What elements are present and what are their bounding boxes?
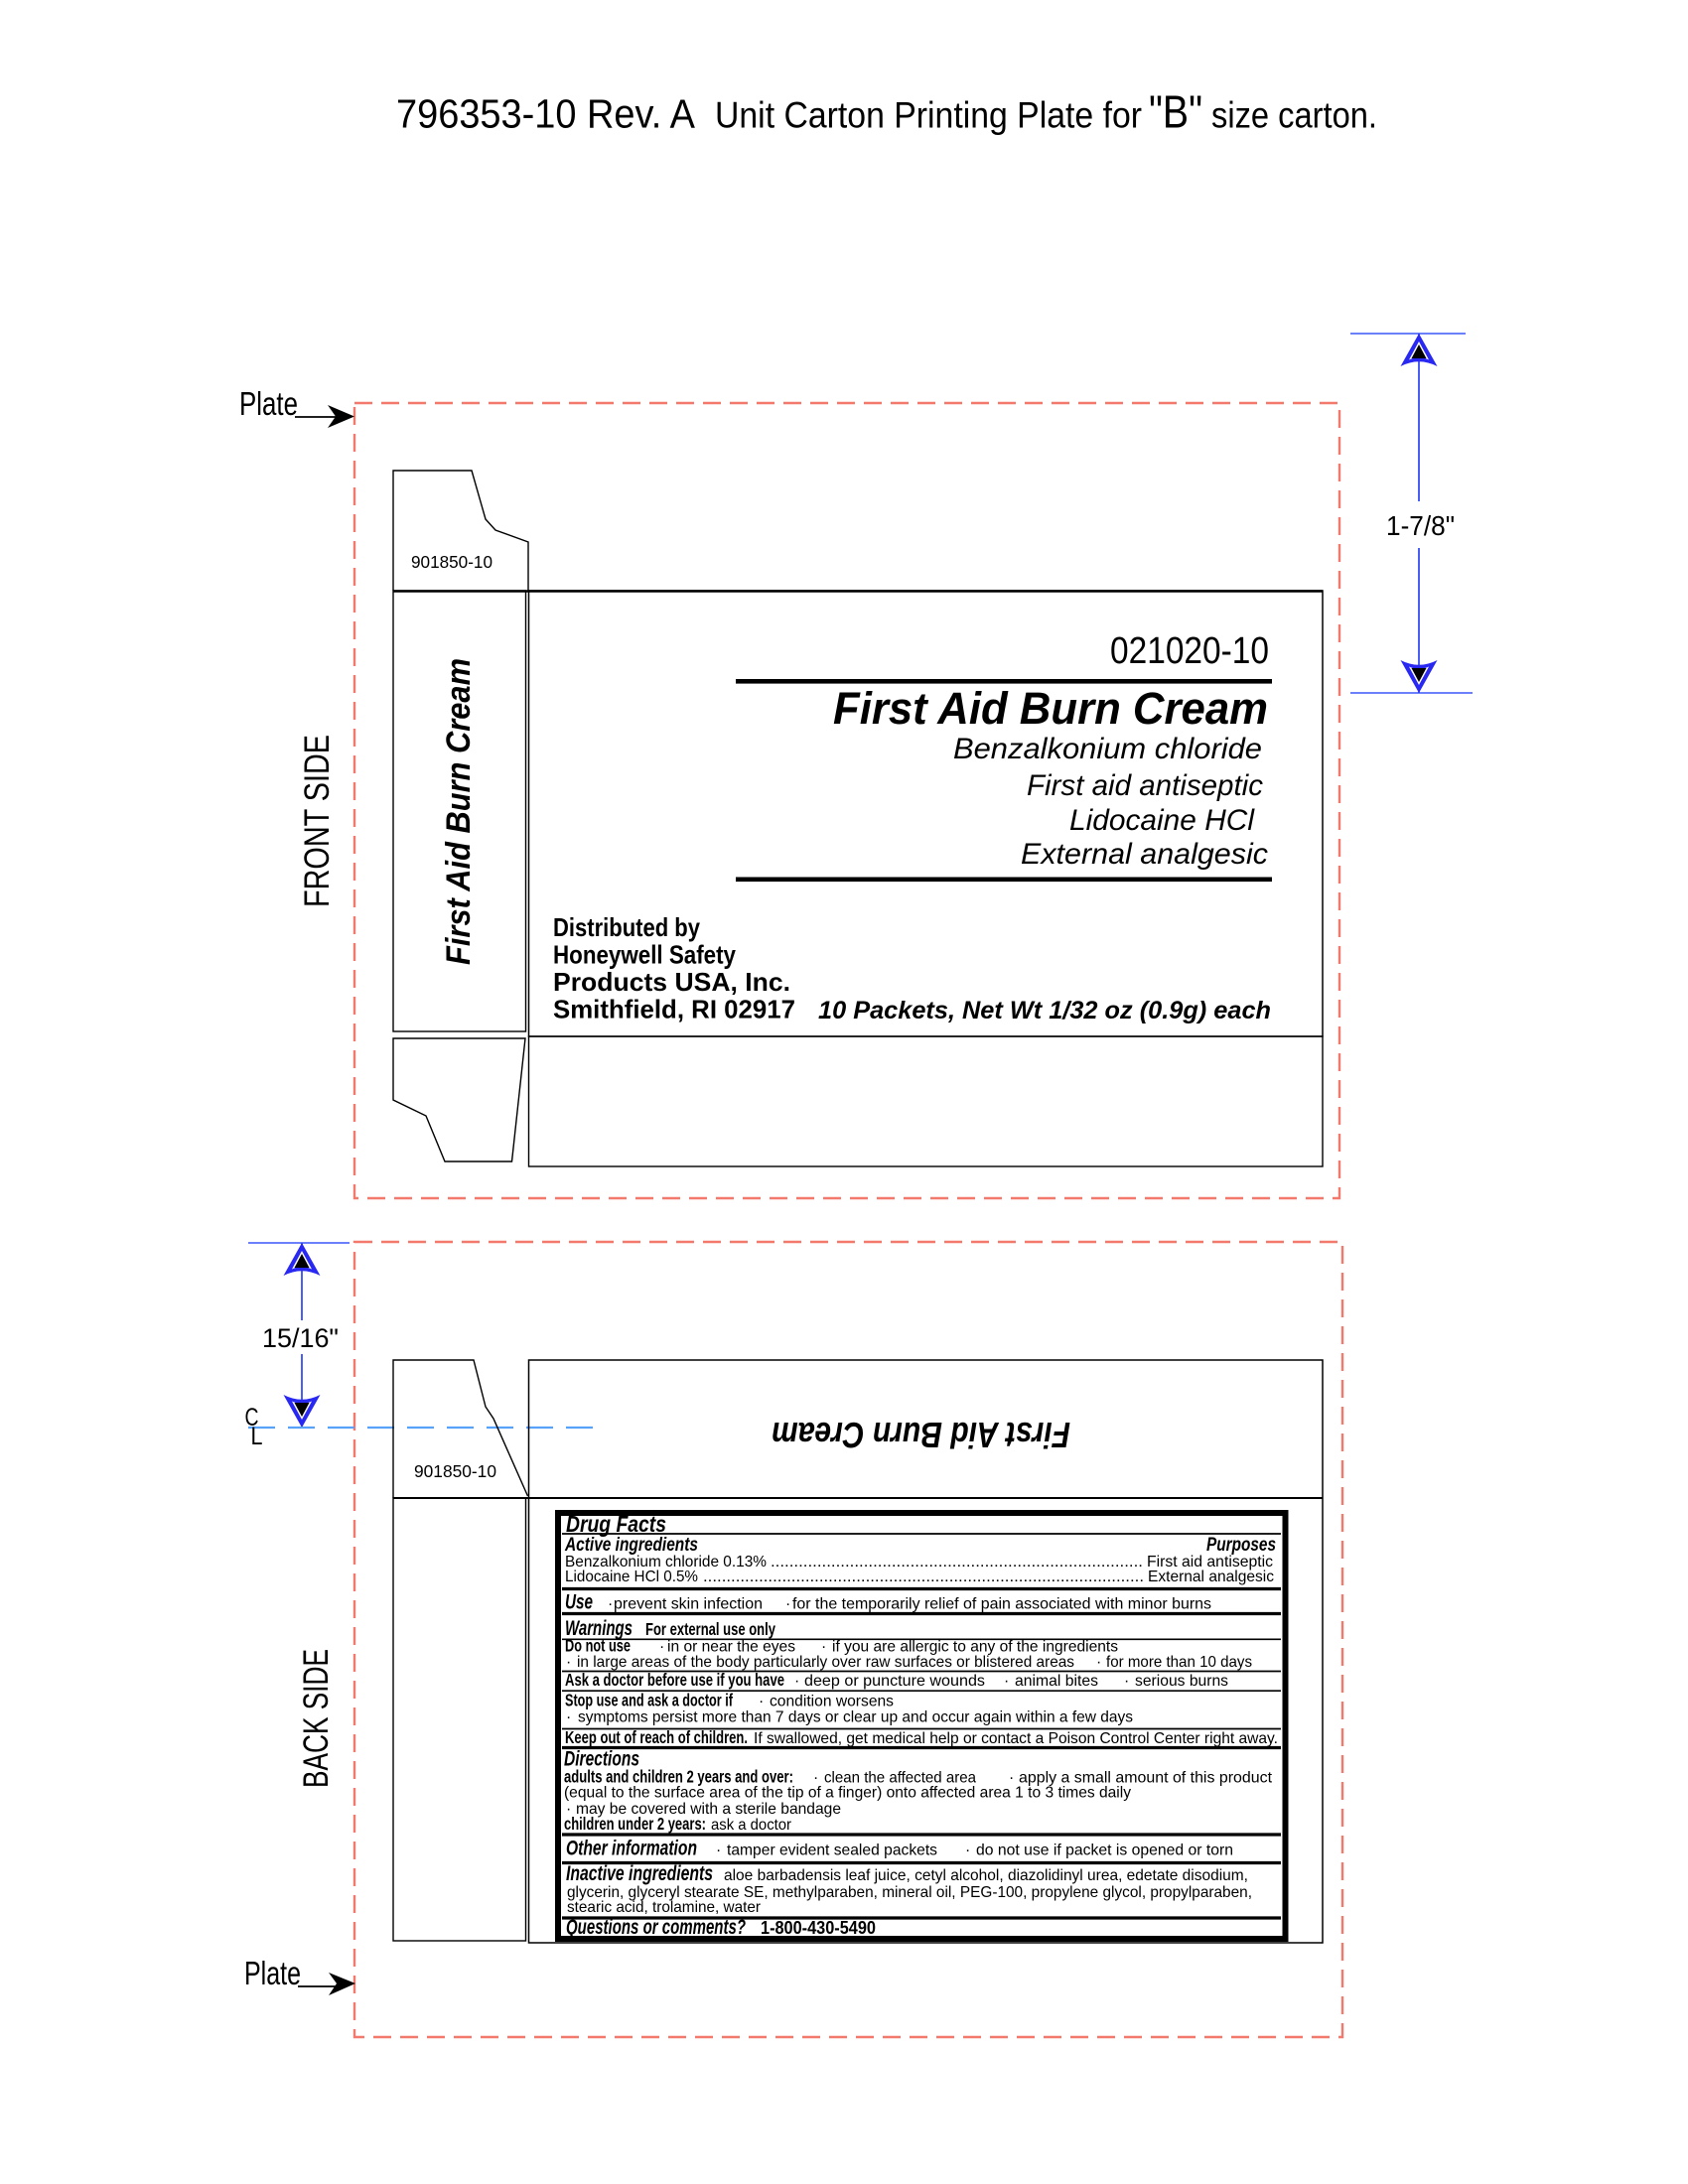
svg-text:If swallowed, get medical help: If swallowed, get medical help or contac…: [754, 1730, 1278, 1747]
svg-text:·: ·: [785, 1596, 790, 1613]
svg-text:901850-10: 901850-10: [414, 1461, 496, 1481]
svg-text:10 Packets, Net Wt 1/32 oz (0.: 10 Packets, Net Wt 1/32 oz (0.9g) each: [818, 997, 1271, 1024]
svg-text:Other information: Other information: [566, 1838, 697, 1860]
svg-text:for the temporarily relief of: for the temporarily relief of pain assoc…: [792, 1596, 1211, 1613]
svg-text:Stop use and ask a doctor if: Stop use and ask a doctor if: [565, 1691, 733, 1710]
svg-text:External analgesic: External analgesic: [1148, 1569, 1274, 1585]
svg-text:1-800-430-5490: 1-800-430-5490: [761, 1917, 876, 1938]
svg-text:deep or puncture wounds: deep or puncture wounds: [804, 1673, 985, 1690]
svg-text:Keep out of reach of children.: Keep out of reach of children.: [565, 1727, 748, 1747]
svg-text:Active ingredients: Active ingredients: [564, 1535, 698, 1556]
svg-text:condition worsens: condition worsens: [770, 1694, 894, 1710]
svg-text:·: ·: [566, 1654, 571, 1671]
svg-text:Do not use: Do not use: [565, 1636, 631, 1656]
svg-text:tamper evident sealed packets: tamper evident sealed packets: [727, 1843, 937, 1859]
svg-text:15/16": 15/16": [262, 1323, 339, 1353]
svg-text:·: ·: [566, 1709, 571, 1726]
svg-text:Use: Use: [565, 1591, 593, 1614]
svg-text:Purposes: Purposes: [1206, 1535, 1276, 1556]
svg-text:First aid antiseptic: First aid antiseptic: [1027, 769, 1263, 802]
svg-text:"B": "B": [1149, 86, 1202, 138]
svg-text:·: ·: [1004, 1673, 1009, 1690]
svg-text:prevent skin infection: prevent skin infection: [614, 1596, 763, 1613]
svg-text:size carton.: size carton.: [1211, 95, 1377, 136]
svg-text:External analgesic: External analgesic: [1021, 838, 1268, 871]
svg-text:Smithfield, RI 02917: Smithfield, RI 02917: [553, 995, 795, 1024]
svg-text:Benzalkonium chloride: Benzalkonium chloride: [953, 733, 1262, 765]
svg-text:Lidocaine HCl 0.5%: Lidocaine HCl 0.5%: [565, 1569, 698, 1585]
svg-text:serious burns: serious burns: [1135, 1673, 1228, 1690]
svg-text:·: ·: [965, 1843, 970, 1859]
svg-text:Honeywell Safety: Honeywell Safety: [553, 940, 736, 970]
svg-text:Questions or comments?: Questions or comments?: [566, 1916, 746, 1939]
svg-text:First Aid Burn Cream: First Aid Burn Cream: [772, 1415, 1070, 1455]
svg-text:021020-10: 021020-10: [1110, 630, 1269, 672]
svg-text:aloe barbadensis leaf juice, c: aloe barbadensis leaf juice, cetyl alcoh…: [724, 1867, 1248, 1884]
svg-text:First Aid Burn Cream: First Aid Burn Cream: [440, 658, 478, 965]
svg-text:adults and children 2 years an: adults and children 2 years and over:: [564, 1767, 793, 1787]
svg-text:·: ·: [759, 1694, 764, 1710]
svg-text:animal bites: animal bites: [1015, 1673, 1098, 1690]
svg-text:for more than 10 days: for more than 10 days: [1106, 1654, 1252, 1671]
svg-text:Products USA, Inc.: Products USA, Inc.: [553, 967, 790, 997]
svg-text:do not use if packet is opened: do not use if packet is opened or torn: [976, 1843, 1233, 1859]
svg-text:·: ·: [821, 1639, 826, 1656]
svg-text:stearic acid, trolamine, water: stearic acid, trolamine, water: [567, 1899, 761, 1916]
svg-text:L: L: [251, 1423, 263, 1450]
svg-text:Ask a doctor before use if you: Ask a doctor before use if you have: [565, 1670, 784, 1690]
svg-text:FRONT SIDE: FRONT SIDE: [298, 735, 337, 907]
svg-text:in or near the eyes: in or near the eyes: [667, 1639, 795, 1656]
svg-text:901850-10: 901850-10: [411, 552, 492, 572]
svg-text:·: ·: [1124, 1673, 1129, 1690]
svg-text:For external use only: For external use only: [645, 1619, 775, 1639]
svg-text:symptoms persist more than 7 d: symptoms persist more than 7 days or cle…: [578, 1709, 1133, 1726]
svg-text:Unit Carton Printing Plate for: Unit Carton Printing Plate for: [715, 95, 1142, 136]
svg-text:children under 2 years:: children under 2 years:: [564, 1814, 706, 1834]
svg-text:ask a doctor: ask a doctor: [711, 1817, 791, 1834]
svg-text:(equal to the surface area of: (equal to the surface area of the tip of…: [564, 1785, 1131, 1802]
svg-text:First Aid Burn Cream: First Aid Burn Cream: [833, 683, 1268, 734]
svg-text:796353-10 Rev. A: 796353-10 Rev. A: [396, 91, 696, 137]
svg-text:·: ·: [608, 1596, 613, 1613]
svg-text:Lidocaine HCl: Lidocaine HCl: [1069, 804, 1255, 837]
svg-text:1-7/8": 1-7/8": [1386, 510, 1455, 541]
svg-text:·: ·: [794, 1673, 799, 1690]
svg-text:in large areas of the body par: in large areas of the body particularly …: [577, 1654, 1074, 1671]
svg-text:·: ·: [716, 1843, 721, 1859]
svg-text:Distributed by: Distributed by: [553, 912, 700, 942]
svg-text:Inactive ingredients: Inactive ingredients: [566, 1862, 713, 1885]
svg-text:Drug Facts: Drug Facts: [566, 1511, 666, 1537]
svg-text:..............................: ........................................…: [703, 1569, 1144, 1585]
svg-text:if you are allergic to any of: if you are allergic to any of the ingred…: [832, 1639, 1118, 1656]
svg-text:·: ·: [1096, 1654, 1101, 1671]
svg-text:Plate: Plate: [244, 1955, 301, 1991]
svg-text:BACK SIDE: BACK SIDE: [297, 1649, 336, 1788]
svg-text:·: ·: [659, 1639, 664, 1656]
svg-text:Plate: Plate: [239, 385, 298, 422]
